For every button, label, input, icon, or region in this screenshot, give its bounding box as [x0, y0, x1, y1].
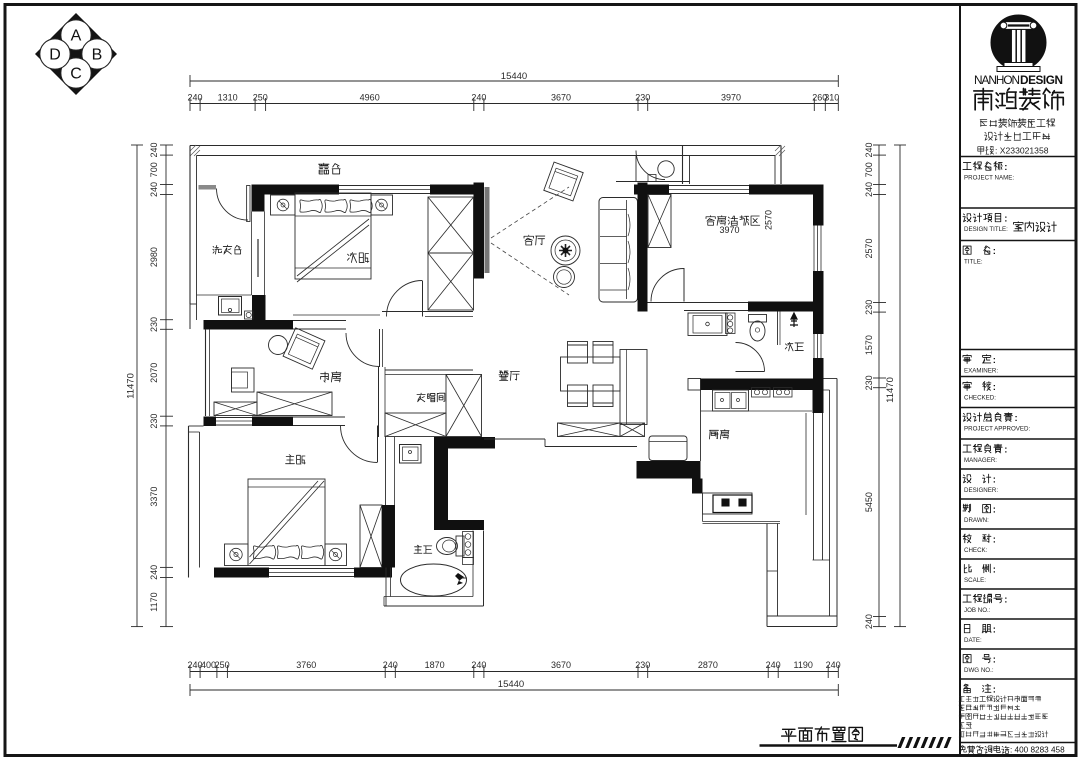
svg-text:240: 240: [864, 182, 874, 197]
svg-text:3670: 3670: [551, 660, 571, 670]
svg-text:3670: 3670: [551, 93, 571, 103]
svg-text:230: 230: [864, 375, 874, 390]
svg-text:11470: 11470: [885, 377, 896, 403]
svg-text:3970: 3970: [721, 93, 741, 103]
svg-text:1190: 1190: [794, 660, 813, 670]
svg-text:700: 700: [864, 162, 874, 177]
svg-text:240: 240: [383, 660, 398, 670]
svg-text:240: 240: [766, 660, 781, 670]
svg-text:5450: 5450: [864, 492, 874, 512]
svg-text:1170: 1170: [149, 592, 159, 611]
svg-text:2870: 2870: [698, 660, 718, 670]
svg-text::: :: [993, 355, 996, 366]
svg-text:230: 230: [149, 414, 159, 429]
svg-text:240: 240: [471, 660, 486, 670]
svg-text:DWG NO.:: DWG NO.:: [964, 667, 994, 674]
svg-text:15440: 15440: [498, 679, 524, 690]
svg-text:3760: 3760: [296, 660, 316, 670]
svg-text:240: 240: [187, 93, 202, 103]
svg-text::: :: [993, 685, 996, 696]
svg-text:DATE:: DATE:: [964, 637, 982, 644]
svg-text:15440: 15440: [501, 71, 527, 82]
svg-text:A: A: [71, 28, 82, 45]
svg-text:EXAMINER:: EXAMINER:: [964, 368, 998, 375]
svg-text::: :: [993, 246, 996, 257]
svg-text::: :: [993, 505, 996, 516]
svg-text:C: C: [70, 66, 82, 83]
svg-text:4960: 4960: [360, 93, 380, 103]
svg-text:DRAWN:: DRAWN:: [964, 517, 989, 524]
svg-text:DESIGN: DESIGN: [1020, 73, 1063, 87]
svg-text::: :: [993, 655, 996, 666]
svg-text:NANHON: NANHON: [974, 73, 1020, 87]
svg-text:1310: 1310: [218, 93, 238, 103]
svg-text:D: D: [49, 47, 61, 64]
svg-text:DESIGNER:: DESIGNER:: [964, 487, 998, 494]
svg-text:: X233021358: : X233021358: [995, 146, 1049, 156]
svg-text::: :: [1004, 162, 1007, 173]
svg-text:250: 250: [253, 93, 268, 103]
svg-text::: :: [993, 475, 996, 486]
svg-text:11470: 11470: [126, 373, 137, 399]
svg-text::: :: [1004, 445, 1007, 456]
svg-text:3370: 3370: [149, 487, 159, 507]
svg-text:: 400 8283 458: : 400 8283 458: [1010, 746, 1065, 755]
svg-text:PROJECT APPROVED:: PROJECT APPROVED:: [964, 426, 1031, 433]
svg-text::: :: [993, 565, 996, 576]
svg-text:230: 230: [864, 300, 874, 315]
svg-text:2570: 2570: [864, 238, 874, 258]
svg-text:DESIGN TITLE:: DESIGN TITLE:: [964, 226, 1008, 233]
svg-text:MANAGER:: MANAGER:: [964, 457, 997, 464]
svg-text::: :: [1004, 214, 1007, 225]
svg-text:2570: 2570: [764, 210, 774, 230]
svg-text:CHECKED:: CHECKED:: [964, 395, 996, 402]
svg-text::: :: [993, 382, 996, 393]
svg-text:JOB NO.:: JOB NO.:: [964, 607, 991, 614]
svg-text:240: 240: [149, 565, 159, 580]
svg-text:CHECK:: CHECK:: [964, 547, 988, 554]
svg-text:B: B: [92, 47, 103, 64]
svg-text::: :: [1004, 595, 1007, 606]
svg-text:240: 240: [149, 142, 159, 157]
svg-text:SCALE:: SCALE:: [964, 577, 986, 584]
svg-text:700: 700: [149, 162, 159, 177]
svg-text:230: 230: [635, 660, 650, 670]
svg-text:240: 240: [864, 142, 874, 157]
svg-text:240: 240: [826, 660, 841, 670]
svg-text:230: 230: [635, 93, 650, 103]
svg-text:310: 310: [824, 93, 839, 103]
svg-text:230: 230: [149, 317, 159, 332]
svg-text:PROJECT NAME:: PROJECT NAME:: [964, 175, 1014, 182]
svg-text:240: 240: [149, 182, 159, 197]
svg-text::: :: [993, 625, 996, 636]
svg-text:3970: 3970: [719, 225, 739, 235]
svg-text:240: 240: [471, 93, 486, 103]
svg-text:250: 250: [215, 660, 230, 670]
svg-text:240: 240: [864, 614, 874, 629]
svg-text::: :: [993, 535, 996, 546]
svg-text:2980: 2980: [149, 247, 159, 267]
svg-text:2070: 2070: [149, 363, 159, 383]
svg-text::: :: [1015, 413, 1018, 424]
svg-text:1870: 1870: [425, 660, 445, 670]
svg-text:TITLE:: TITLE:: [964, 259, 983, 266]
svg-text:1570: 1570: [864, 335, 874, 355]
